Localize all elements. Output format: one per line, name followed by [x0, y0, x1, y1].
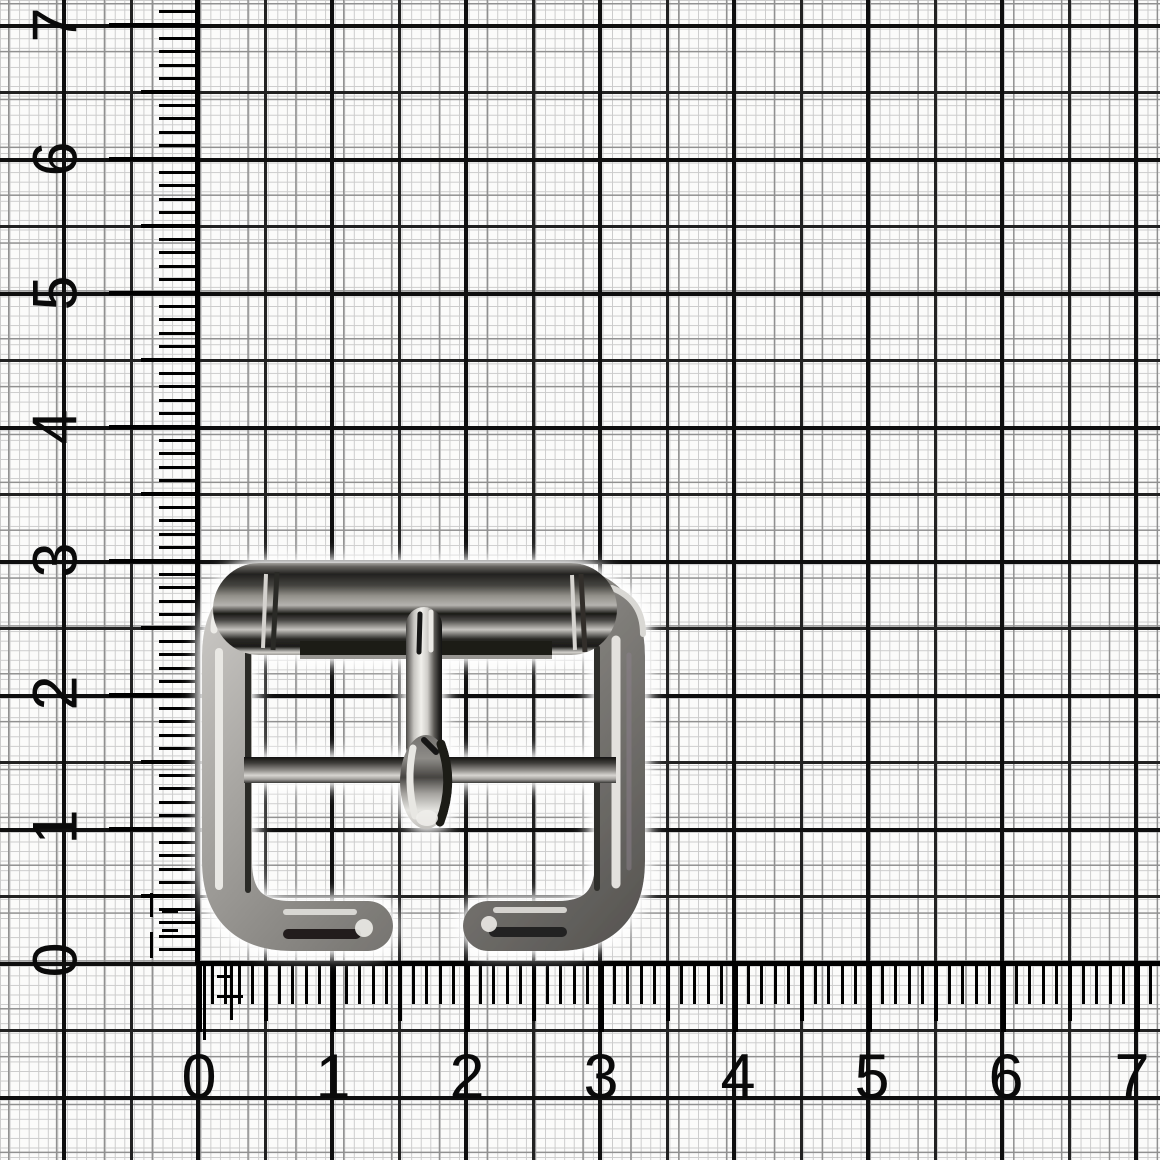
photo-canvas: 7 6 5 4 3 2 1 0 0 1 2 3 4 5 6 7 [0, 0, 1160, 1160]
buckle-photo [0, 0, 1160, 1160]
knuckle-bottom-highlight [416, 810, 438, 826]
left-foot-tip-highlight [355, 919, 373, 937]
pin-top-slit [419, 614, 420, 652]
right-foot-tip-highlight [481, 916, 497, 932]
